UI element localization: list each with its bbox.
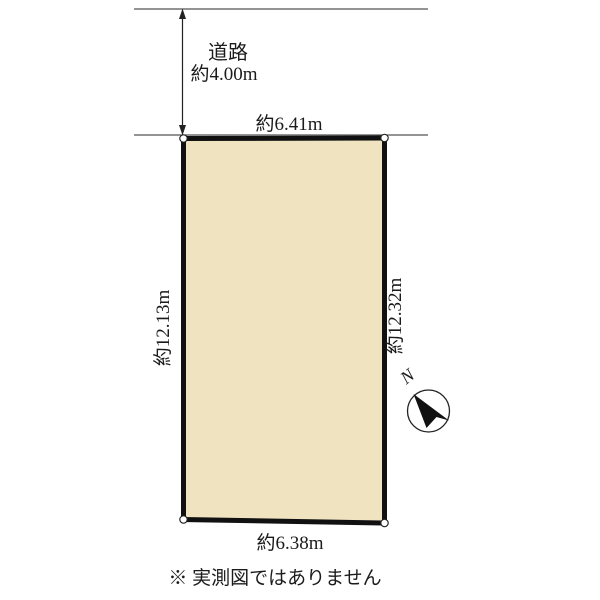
- arrow-head-up-icon: [179, 9, 186, 20]
- land-plot-diagram: 道路 約4.00m 約6.41m 約6.38m 約12.13m 約12.32m …: [0, 0, 600, 600]
- arrow-head-down-icon: [179, 125, 186, 136]
- north-label: N: [396, 364, 419, 388]
- corner-marker-bottom-right: [381, 519, 388, 526]
- corner-marker-top-left: [180, 135, 187, 142]
- dimension-top-label: 約6.41m: [255, 113, 322, 135]
- corner-marker-bottom-left: [180, 516, 187, 523]
- dimension-right-label: 約12.32m: [384, 278, 406, 355]
- road-width-label: 約4.00m: [190, 63, 257, 85]
- dimension-bottom-label: 約6.38m: [256, 532, 323, 554]
- diagram-svg: 道路 約4.00m 約6.41m 約6.38m 約12.13m 約12.32m …: [0, 0, 600, 600]
- disclaimer-note: ※ 実測図ではありません: [168, 567, 381, 589]
- road-name-label: 道路: [208, 41, 248, 64]
- dimension-left-label: 約12.13m: [152, 290, 174, 367]
- corner-marker-top-right: [381, 134, 388, 141]
- compass-icon: N: [396, 364, 450, 432]
- land-parcel: [184, 138, 385, 523]
